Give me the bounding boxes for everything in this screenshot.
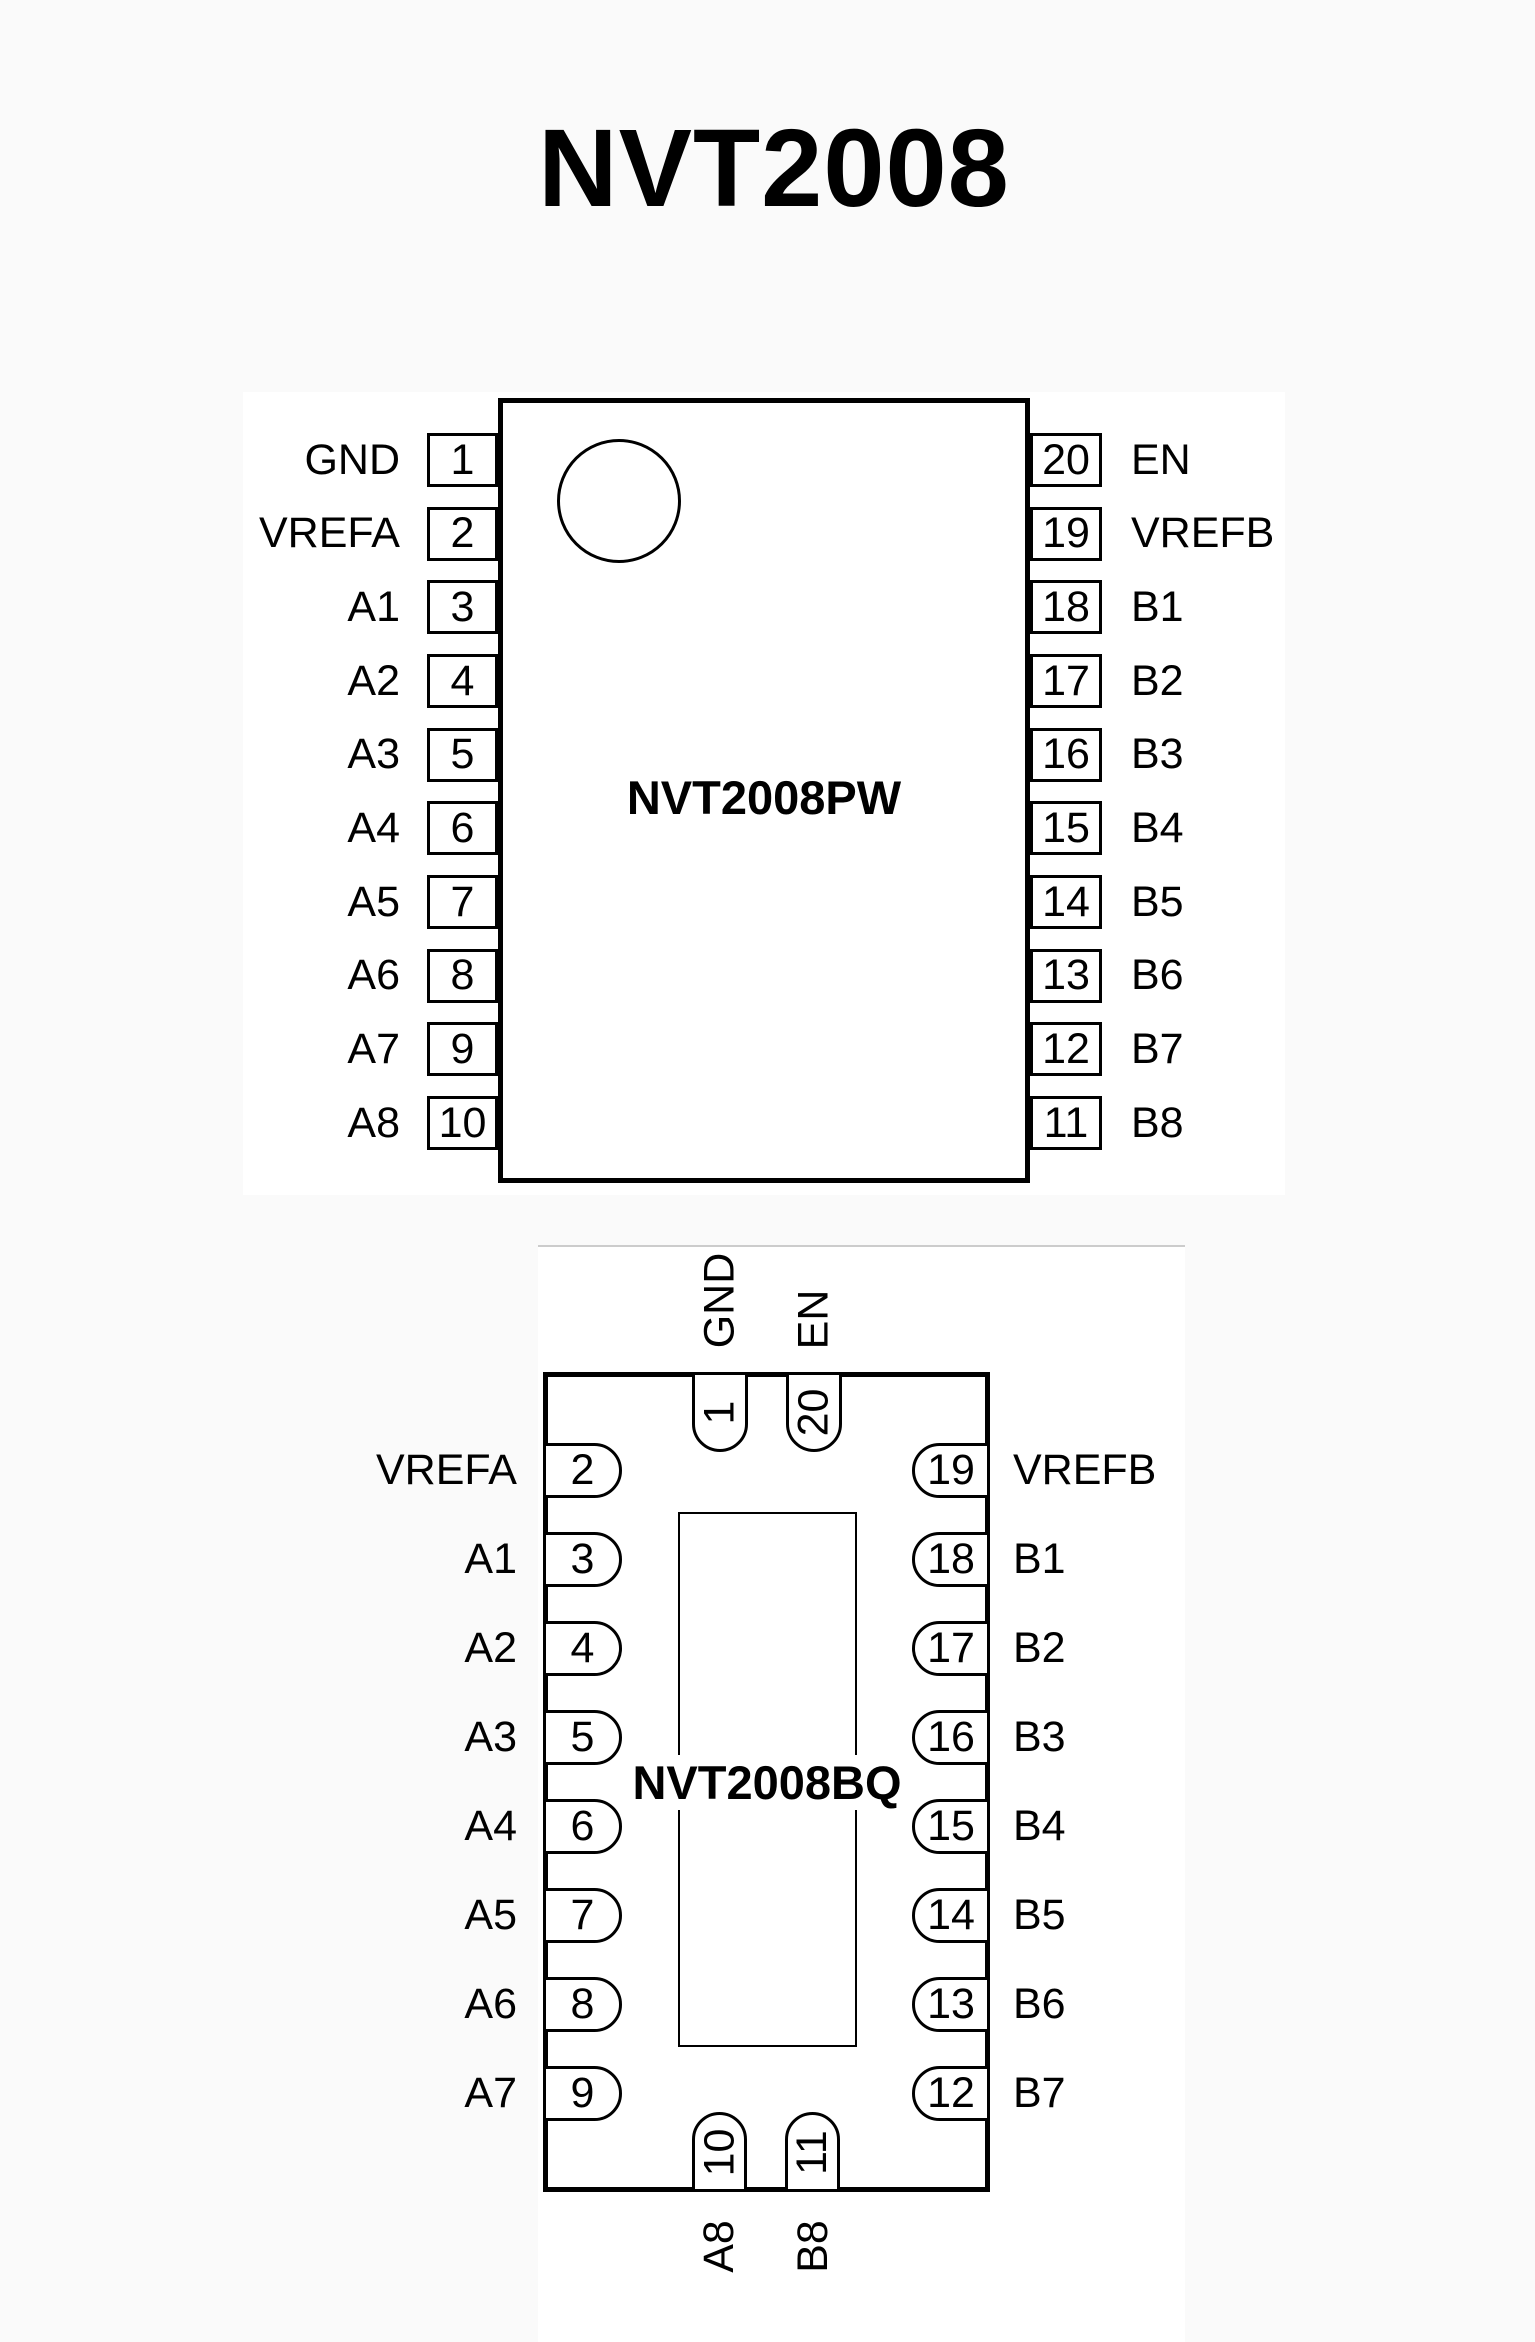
pw-chip-name: NVT2008PW xyxy=(464,762,1064,832)
page-title: NVT2008 xyxy=(374,98,1174,238)
pw-pin-1-label: GND xyxy=(80,432,400,488)
pw-pin1-marker-circle-icon xyxy=(557,439,681,563)
bq-pin-2-capsule: 2 xyxy=(543,1443,622,1498)
pw-pin-1-box: 1 xyxy=(427,433,498,487)
bq-pin-13-label: B6 xyxy=(1013,1976,1333,2032)
bq-pin-1-number: 1 xyxy=(695,1400,744,1424)
pw-pin-18-box: 18 xyxy=(1030,580,1102,634)
pw-pin-8-box: 8 xyxy=(427,949,498,1003)
bq-pin-17-label: B2 xyxy=(1013,1620,1333,1676)
pw-pin-6-label: A4 xyxy=(80,800,400,856)
pw-pin-15-label: B4 xyxy=(1131,800,1451,856)
bq-pin-7-label: A5 xyxy=(197,1887,517,1943)
bq-pin-14-label: B5 xyxy=(1013,1887,1333,1943)
bq-pin-3-capsule: 3 xyxy=(543,1532,622,1587)
pw-pin-14-label: B5 xyxy=(1131,874,1451,930)
pw-pin-8-label: A6 xyxy=(80,948,400,1004)
pw-pin-18-label: B1 xyxy=(1131,579,1451,635)
bq-pin-19-label: VREFB xyxy=(1013,1442,1333,1498)
pw-pin-13-box: 13 xyxy=(1030,949,1102,1003)
bq-pin-7-capsule: 7 xyxy=(543,1888,622,1943)
bq-pin-11-capsule: 11 xyxy=(785,2112,840,2192)
bq-pin-3-label: A1 xyxy=(197,1531,517,1587)
pw-pin-19-label: VREFB xyxy=(1131,506,1451,562)
pw-pin-10-label: A8 xyxy=(80,1095,400,1151)
bq-pin-11-number: 11 xyxy=(788,2130,837,2175)
pw-pin-7-label: A5 xyxy=(80,874,400,930)
bq-pin-4-capsule: 4 xyxy=(543,1621,622,1676)
datasheet-page: NVT2008 NVT2008PW NVT2008BQ 1GND2VREFA3A… xyxy=(0,0,1535,2342)
bq-pin-13-capsule: 13 xyxy=(912,1977,990,2032)
bq-chip-name: NVT2008BQ xyxy=(467,1747,1067,1817)
bq-pin-9-capsule: 9 xyxy=(543,2066,622,2121)
figure2-top-border xyxy=(538,1245,1185,1247)
pw-pin-12-box: 12 xyxy=(1030,1022,1102,1076)
bq-pin-12-capsule: 12 xyxy=(912,2066,990,2121)
pw-pin-12-label: B7 xyxy=(1131,1021,1451,1077)
pw-pin-2-box: 2 xyxy=(427,507,498,561)
pw-pin-3-label: A1 xyxy=(80,579,400,635)
bq-pin-4-label: A2 xyxy=(197,1620,517,1676)
bq-pin-19-capsule: 19 xyxy=(912,1443,990,1498)
bq-pin-20-number: 20 xyxy=(790,1388,839,1436)
pw-pin-9-label: A7 xyxy=(80,1021,400,1077)
bq-pin-9-label: A7 xyxy=(197,2065,517,2121)
bq-pin-20-label-text: EN xyxy=(789,1289,838,1349)
pw-pin-14-box: 14 xyxy=(1030,875,1102,929)
pw-pin-9-box: 9 xyxy=(427,1022,498,1076)
bq-pin-18-label: B1 xyxy=(1013,1531,1333,1587)
bq-pin-2-label: VREFA xyxy=(197,1442,517,1498)
bq-pin-10-number: 10 xyxy=(695,2128,744,2176)
pw-pin-7-box: 7 xyxy=(427,875,498,929)
pw-pin-4-label: A2 xyxy=(80,653,400,709)
pw-pin-20-box: 20 xyxy=(1030,433,1102,487)
bq-pin-20-label: EN xyxy=(664,1294,964,1344)
bq-pin-1-capsule: 1 xyxy=(692,1372,748,1452)
pw-pin-2-label: VREFA xyxy=(80,506,400,562)
bq-pin-20-capsule: 20 xyxy=(786,1372,842,1452)
bq-pin-10-capsule: 10 xyxy=(692,2112,747,2192)
bq-pin-8-label: A6 xyxy=(197,1976,517,2032)
pw-pin-17-box: 17 xyxy=(1030,654,1102,708)
bq-pin-11-label-text: B8 xyxy=(788,2220,837,2273)
pw-pin-10-box: 10 xyxy=(427,1096,498,1150)
pw-pin-11-box: 11 xyxy=(1030,1096,1102,1150)
bq-pin-18-capsule: 18 xyxy=(912,1532,990,1587)
pw-pin-19-box: 19 xyxy=(1030,507,1102,561)
bq-pin-12-label: B7 xyxy=(1013,2065,1333,2121)
pw-pin-13-label: B6 xyxy=(1131,948,1451,1004)
pw-pin-20-label: EN xyxy=(1131,432,1451,488)
pw-pin-5-label: A3 xyxy=(80,727,400,783)
pw-pin-11-label: B8 xyxy=(1131,1095,1451,1151)
pw-pin-3-box: 3 xyxy=(427,580,498,634)
bq-pin-14-capsule: 14 xyxy=(912,1888,990,1943)
bq-pin-17-capsule: 17 xyxy=(912,1621,990,1676)
bq-pin-8-capsule: 8 xyxy=(543,1977,622,2032)
pw-pin-17-label: B2 xyxy=(1131,653,1451,709)
pw-pin-4-box: 4 xyxy=(427,654,498,708)
bq-pin-11-label: B8 xyxy=(663,2221,963,2271)
pw-pin-16-label: B3 xyxy=(1131,727,1451,783)
